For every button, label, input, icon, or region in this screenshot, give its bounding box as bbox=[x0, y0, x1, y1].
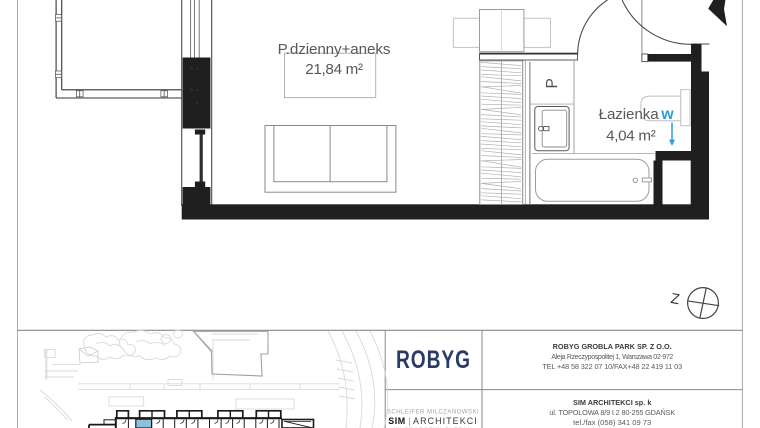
svg-text:TEL +48 58 322 07 10/FAX+48 22: TEL +48 58 322 07 10/FAX+48 22 419 11 03 bbox=[542, 362, 682, 371]
svg-text:ROBYG: ROBYG bbox=[396, 346, 471, 374]
svg-text:P.dzienny+aneks: P.dzienny+aneks bbox=[278, 41, 391, 58]
svg-text:SCHLEIFER MILCZANOWSKI: SCHLEIFER MILCZANOWSKI bbox=[387, 408, 479, 415]
svg-text:SIM ARCHITEKCI sp. k: SIM ARCHITEKCI sp. k bbox=[573, 398, 652, 407]
svg-text:ROBYG GROBLA PARK SP. Z O.O.: ROBYG GROBLA PARK SP. Z O.O. bbox=[553, 342, 672, 351]
svg-text:w: w bbox=[660, 106, 674, 123]
svg-text:Aleja Rzeczypospolitej 1, Wars: Aleja Rzeczypospolitej 1, Warszawa 02-97… bbox=[551, 354, 673, 361]
svg-text:ul. TOPOLOWA 8/9 I.2 80-255 GD: ul. TOPOLOWA 8/9 I.2 80-255 GDAŃSK bbox=[549, 408, 675, 417]
svg-text:4,04 m²: 4,04 m² bbox=[606, 127, 656, 144]
svg-text:SIM | ARCHITEKCI: SIM | ARCHITEKCI bbox=[388, 416, 478, 426]
svg-text:P: P bbox=[544, 78, 561, 88]
svg-text:tel./fax (058) 341 09 73: tel./fax (058) 341 09 73 bbox=[573, 418, 651, 427]
svg-text:Łazienka: Łazienka bbox=[599, 106, 660, 123]
svg-text:21,84 m²: 21,84 m² bbox=[305, 61, 363, 78]
